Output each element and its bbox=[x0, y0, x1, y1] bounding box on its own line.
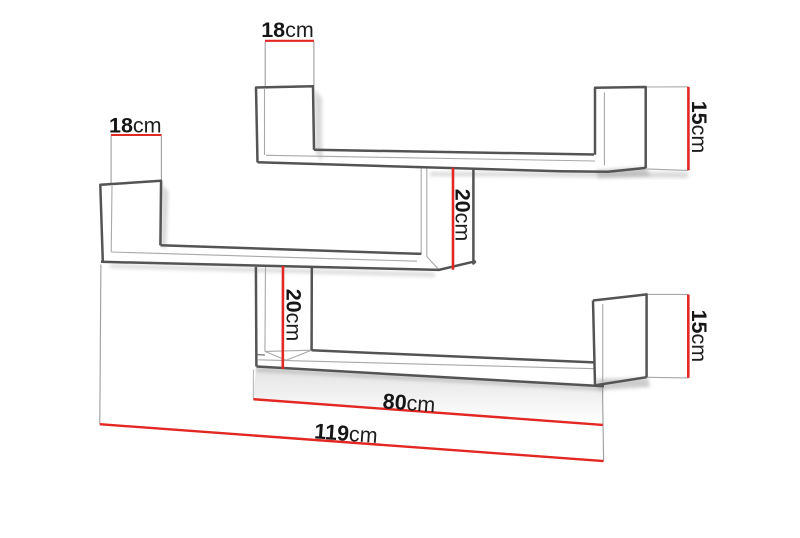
svg-text:15cm: 15cm bbox=[687, 310, 711, 363]
svg-text:80cm: 80cm bbox=[382, 389, 436, 417]
svg-text:18cm: 18cm bbox=[261, 18, 314, 42]
svg-text:18cm: 18cm bbox=[109, 113, 162, 137]
svg-text:15cm: 15cm bbox=[687, 101, 711, 154]
svg-text:20cm: 20cm bbox=[281, 289, 305, 342]
svg-text:20cm: 20cm bbox=[451, 189, 475, 242]
svg-text:119cm: 119cm bbox=[314, 419, 379, 448]
